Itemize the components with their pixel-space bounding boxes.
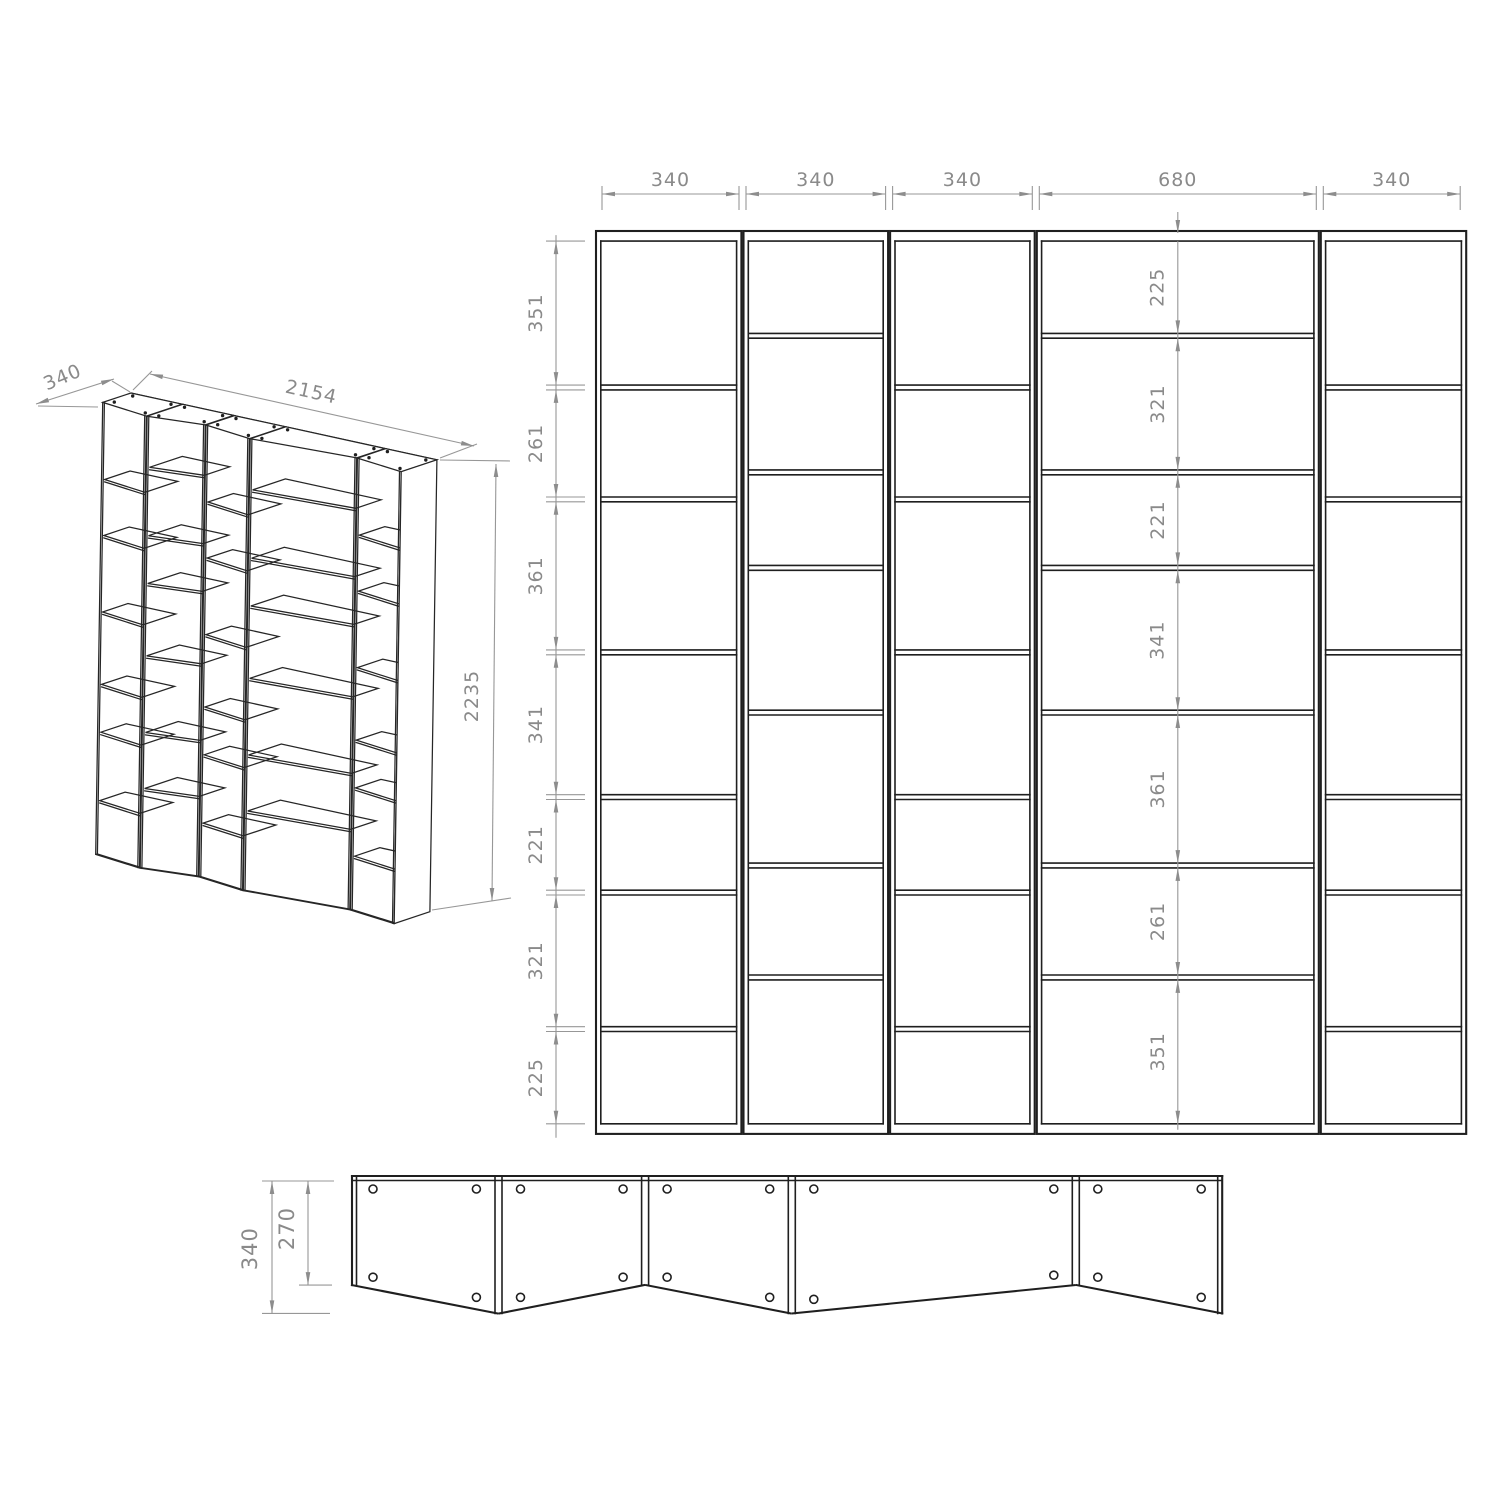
shelf-front-edge (207, 561, 247, 574)
dim-arrow (1176, 570, 1181, 583)
screw-dot (183, 406, 186, 409)
screw-dot (398, 467, 401, 470)
column-width-label: 340 (796, 169, 835, 191)
bottom-front-edge (199, 877, 243, 891)
dim-arrow (554, 502, 559, 515)
shelf-column-3 (890, 231, 1035, 1134)
column-outline (596, 231, 741, 1134)
screw-dot (272, 425, 275, 428)
shelf-front-edge (359, 538, 399, 551)
front-elevation-view (596, 231, 1466, 1134)
shelf-front-edge (208, 504, 248, 517)
dim-arrow (1176, 320, 1181, 333)
extension-line (38, 406, 98, 407)
extension-line (112, 381, 130, 392)
shelf-surface (150, 456, 230, 475)
drill-hole (663, 1273, 671, 1281)
dim-arrow (1176, 475, 1181, 488)
shelf-front-edge (206, 637, 246, 650)
front-edge-line (793, 1285, 1075, 1313)
drill-hole (1094, 1273, 1102, 1281)
shelf-column-5 (1321, 231, 1466, 1134)
screw-dot (221, 414, 224, 417)
front-vertical-edge (97, 403, 104, 855)
dim-arrow (1176, 715, 1181, 728)
dim-arrow (270, 1181, 275, 1194)
shelf-front-edge (103, 614, 143, 627)
screw-dot (260, 437, 263, 440)
drill-hole (472, 1293, 480, 1301)
dim-arrow (1303, 192, 1316, 197)
drill-hole (810, 1295, 818, 1303)
shelf-front-edge (104, 538, 144, 551)
shelf-height-label: 221 (525, 825, 547, 864)
drill-hole (810, 1185, 818, 1193)
shelf-front-edge (356, 743, 396, 756)
shelf-height-label: 321 (1147, 384, 1169, 423)
shelf-height-label: 351 (525, 293, 547, 332)
bottom-front-edge (201, 877, 244, 891)
drill-hole (517, 1185, 525, 1193)
dim-arrow (1176, 868, 1181, 881)
dimension-line (492, 464, 496, 901)
plan-depth-label: 270 (275, 1207, 299, 1250)
left-height-dimension-chain: 351261361341221321225 (525, 235, 585, 1138)
drill-hole (663, 1185, 671, 1193)
shelf-height-label: 361 (525, 556, 547, 595)
dim-arrow (746, 192, 759, 197)
screw-dot (234, 417, 237, 420)
column-width-label: 340 (1372, 169, 1411, 191)
screw-dot (113, 400, 116, 403)
shelf-height-label: 361 (1147, 769, 1169, 808)
dim-arrow (554, 895, 559, 908)
shelf-column-1 (596, 231, 741, 1134)
extension-line (432, 898, 511, 910)
dim-arrow (1019, 192, 1032, 197)
screw-dot (247, 434, 250, 437)
shelf-height-label: 341 (1147, 621, 1169, 660)
bottom-front-edge (245, 890, 351, 909)
drill-hole (766, 1185, 774, 1193)
dim-arrow (554, 1014, 559, 1027)
dim-arrow (554, 782, 559, 795)
dim-arrow (726, 192, 739, 197)
shelf-surface (206, 626, 279, 647)
shelf-surface (145, 778, 225, 797)
drill-hole (472, 1185, 480, 1193)
extension-line (440, 460, 510, 461)
dim-arrow (494, 464, 499, 477)
shelf-front-edge (102, 687, 142, 700)
shelf-surface (205, 699, 278, 720)
column-top-face (250, 427, 385, 458)
extension-line (440, 444, 477, 458)
isometric-view (96, 393, 437, 924)
shelf-surface (208, 494, 281, 515)
extension-line (133, 371, 152, 390)
column-width-label: 340 (943, 169, 982, 191)
shelf-surface (105, 471, 178, 492)
shelf-front-edge (101, 735, 141, 748)
shelf-height-label: 351 (1147, 1032, 1169, 1071)
shelf-height-label: 261 (525, 424, 547, 463)
screw-dot (367, 456, 370, 459)
dim-arrow (1176, 552, 1181, 565)
dim-arrow (306, 1181, 311, 1194)
dim-arrow (1039, 192, 1052, 197)
dim-arrow (893, 192, 906, 197)
shelf-front-edge (356, 790, 396, 803)
bottom-front-edge (142, 868, 200, 877)
dim-arrow (1176, 980, 1181, 993)
dim-arrow (1176, 457, 1181, 470)
iso-column-2 (140, 416, 230, 877)
dim-arrow (270, 1300, 275, 1313)
bottom-front-edge (351, 910, 395, 924)
dim-arrow (1323, 192, 1336, 197)
dim-arrow (554, 1032, 559, 1045)
plan-view (352, 1176, 1222, 1313)
screw-dot (424, 458, 427, 461)
shelf-front-edge (203, 826, 243, 839)
drill-hole (619, 1185, 627, 1193)
dim-arrow (554, 637, 559, 650)
screw-dot (354, 453, 357, 456)
dim-arrow (1176, 338, 1181, 351)
shelf-surface (103, 604, 176, 625)
drill-hole (766, 1293, 774, 1301)
dim-arrow (602, 192, 615, 197)
iso-width-label: 2154 (283, 376, 339, 409)
front-vertical-edge (96, 402, 103, 854)
dim-arrow (554, 484, 559, 497)
plan-depth-dimensions: 340270 (238, 1181, 334, 1313)
shelf-height-label: 261 (1147, 902, 1169, 941)
shelf-front-edge (252, 561, 355, 580)
screw-dot (144, 411, 147, 414)
bottom-front-edge (96, 854, 140, 868)
drill-hole (619, 1273, 627, 1281)
shelf-height-label: 225 (525, 1058, 547, 1097)
plan-depth-label: 340 (238, 1227, 262, 1270)
dim-arrow (1176, 1111, 1181, 1124)
iso-height-label: 2235 (461, 670, 483, 722)
screw-dot (286, 428, 289, 431)
shelf-surface (100, 792, 173, 813)
drill-hole (1050, 1271, 1058, 1279)
drill-hole (1094, 1185, 1102, 1193)
dim-arrow (554, 390, 559, 403)
screw-dot (372, 447, 375, 450)
dim-arrow (554, 800, 559, 813)
dim-arrow (1176, 962, 1181, 975)
column-outline (744, 231, 889, 1134)
shelf-surface (147, 645, 227, 664)
dim-arrow (873, 192, 886, 197)
dim-arrow (1176, 697, 1181, 710)
drill-hole (369, 1185, 377, 1193)
dim-arrow (36, 398, 49, 404)
screw-dot (169, 403, 172, 406)
column-width-label: 680 (1158, 169, 1197, 191)
shelf-height-label: 341 (525, 705, 547, 744)
shelf-front-edge (249, 757, 352, 775)
dim-arrow (1176, 850, 1181, 863)
middle-height-dimension-chain: 225321221341361261351 (1147, 212, 1180, 1130)
screw-dot (216, 423, 219, 426)
bottom-front-edge (97, 854, 141, 868)
shelf-front-edge (251, 608, 354, 627)
dim-arrow (101, 379, 114, 385)
dim-arrow (306, 1272, 311, 1285)
shelf-height-label: 221 (1147, 500, 1169, 539)
shelf-front-edge (354, 859, 394, 872)
dim-arrow (150, 374, 163, 379)
drill-hole (517, 1293, 525, 1301)
drill-hole (369, 1273, 377, 1281)
dim-arrow (1447, 192, 1460, 197)
shelf-height-label: 321 (525, 941, 547, 980)
column-width-label: 340 (651, 169, 690, 191)
drill-hole (1197, 1293, 1205, 1301)
shelf-front-edge (250, 681, 353, 700)
dim-arrow (554, 241, 559, 254)
shelf-front-edge (357, 670, 397, 683)
shelf-column-2 (744, 231, 889, 1134)
bottom-front-edge (243, 891, 349, 910)
shelf-front-edge (100, 803, 140, 816)
drill-hole (1050, 1185, 1058, 1193)
dim-arrow (554, 372, 559, 385)
top-width-dimensions: 340340340680340 (602, 169, 1460, 210)
screw-dot (131, 394, 134, 397)
column-outline (1321, 231, 1466, 1134)
column-outline (890, 231, 1035, 1134)
shelf-surface (148, 573, 228, 592)
bottom-front-edge (352, 910, 396, 924)
screw-dot (157, 414, 160, 417)
dim-arrow (554, 1111, 559, 1124)
shelf-surface (203, 815, 276, 836)
shelf-front-edge (105, 482, 145, 495)
dim-arrow (554, 655, 559, 668)
drill-hole (1197, 1185, 1205, 1193)
screw-dot (386, 450, 389, 453)
dim-arrow (461, 441, 474, 446)
dim-arrow (554, 877, 559, 890)
screw-dot (203, 420, 206, 423)
right-side-panel (394, 460, 437, 924)
dim-arrow (490, 888, 495, 901)
shelf-front-edge (205, 709, 245, 722)
technical-drawing-page: 3403403406803403512613613412213212252253… (0, 0, 1500, 1500)
shelf-surface (102, 676, 175, 697)
shelf-front-edge (204, 757, 244, 770)
shelf-front-edge (359, 594, 399, 607)
shelf-height-label: 225 (1147, 268, 1169, 307)
drawing-canvas: 3403403406803403512613613412213212252253… (0, 0, 1500, 1500)
